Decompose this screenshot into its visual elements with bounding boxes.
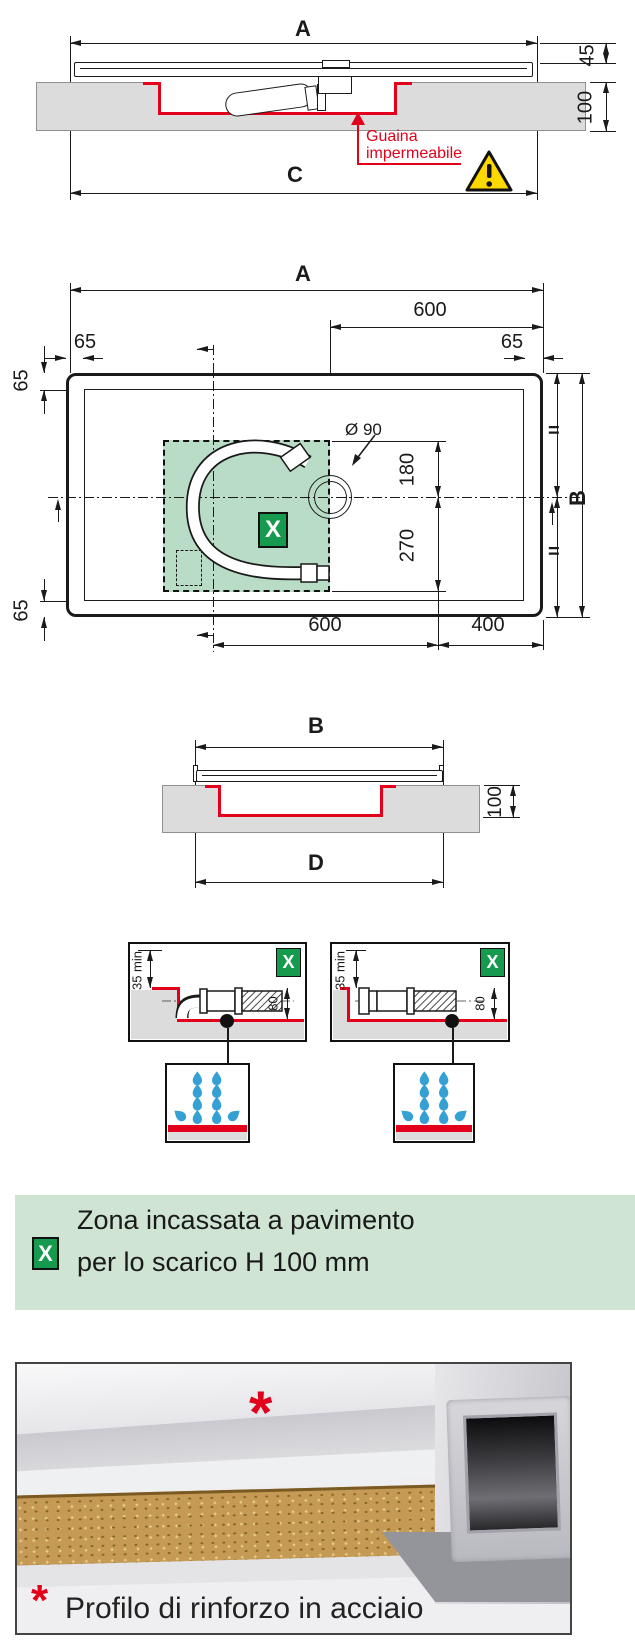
tray-surface-line [80, 68, 527, 69]
drain-cap [322, 60, 350, 68]
arrowhead [41, 390, 47, 401]
arrowhead [55, 355, 66, 361]
arrowhead [427, 642, 438, 648]
tray-surface-line [202, 775, 437, 776]
dim-label-b: B [296, 713, 336, 739]
callout-line [227, 1028, 229, 1063]
zone-marker-badge: X [276, 948, 301, 977]
shower-tray-profile [74, 62, 533, 77]
arrowhead [435, 441, 441, 452]
arrowhead [435, 497, 441, 508]
arrowhead [435, 486, 441, 497]
arrowhead [554, 486, 560, 497]
drain-hole-inner [314, 481, 347, 514]
extension-line [590, 131, 616, 132]
extension-line [70, 283, 71, 373]
arrowhead [197, 632, 208, 638]
dim-label-65-tl: 65 [65, 331, 105, 354]
arrowhead [435, 580, 441, 591]
warning-icon [464, 149, 514, 193]
dimension-line [330, 327, 543, 328]
asterisk-marker: * [31, 1576, 48, 1626]
equal-mark-bottom: = [548, 541, 560, 564]
dimension-line [438, 441, 439, 591]
dim-label-35min: 35 min [130, 946, 145, 996]
drain-pipe-straight [355, 985, 490, 1019]
photo-steel-profile [463, 1412, 561, 1533]
membrane-stub [383, 785, 396, 788]
water-drops-icon [170, 1066, 245, 1124]
equal-mark-top: = [548, 420, 560, 443]
membrane [177, 1019, 304, 1022]
reinforcement-photo: * * Profilo di rinforzo in acciaio [15, 1362, 572, 1635]
extension-line [332, 441, 446, 442]
arrowhead [330, 324, 341, 330]
extension-line [332, 591, 446, 592]
arrowhead [491, 1008, 497, 1019]
arrowhead [554, 606, 560, 617]
arrowhead [284, 1008, 290, 1019]
zone-marker-badge: X [480, 948, 505, 977]
water-drops-icon [397, 1066, 472, 1124]
dimension-line [213, 645, 543, 646]
dim-label-270: 270 [397, 523, 420, 569]
arrowhead [284, 988, 290, 999]
dimension-line [195, 747, 443, 748]
red-arrow-up [351, 112, 365, 125]
dim-label-65-lb: 65 [11, 591, 34, 631]
note-impermeabile: impermeabile [366, 145, 462, 163]
dim-label-600-top: 600 [400, 299, 460, 322]
callout-dot [220, 1014, 234, 1028]
arrowhead [432, 744, 443, 750]
asterisk-marker: * [249, 1378, 272, 1447]
dim-label-65-tr: 65 [492, 331, 532, 354]
dim-label-65-lt: 65 [11, 361, 34, 401]
dim-label-c: C [275, 162, 315, 188]
arrowhead [603, 53, 609, 64]
membrane [347, 1019, 507, 1022]
membrane [396, 1125, 472, 1132]
arrowhead [70, 190, 81, 196]
membrane-stub [205, 785, 218, 788]
dim-label-100: 100 [485, 782, 507, 822]
arrowhead [55, 499, 61, 510]
recess-waterproofed [218, 785, 383, 817]
arrowhead [526, 40, 537, 46]
shower-tray-profile [196, 770, 443, 782]
arrowhead [70, 287, 81, 293]
screed [333, 1022, 507, 1039]
legend-text-line2: per lo scarico H 100 mm [77, 1247, 370, 1278]
dimension-line [70, 193, 537, 194]
arrowhead [510, 806, 516, 817]
photo-caption: Profilo di rinforzo in acciaio [65, 1592, 424, 1626]
extension-line [543, 620, 544, 650]
membrane-stub [397, 82, 412, 85]
arrowhead [213, 642, 224, 648]
callout-line [452, 1028, 454, 1063]
screed [131, 1022, 304, 1039]
dim-label-80: 80 [473, 989, 488, 1019]
arrowhead [41, 362, 47, 373]
arrowhead [41, 590, 47, 601]
dim-label-b: B [565, 478, 591, 518]
dim-label-180: 180 [397, 447, 420, 493]
arrowhead [526, 190, 537, 196]
dim-label-a: A [283, 16, 323, 42]
dim-label-600-bottom: 600 [295, 614, 355, 637]
arrowhead [491, 988, 497, 999]
arrowhead [579, 606, 585, 617]
arrowhead [579, 373, 585, 384]
arrowhead [70, 40, 81, 46]
dim-label-45: 45 [577, 36, 600, 76]
arrowhead [353, 950, 359, 961]
dim-label-d: D [296, 850, 336, 876]
legend-text-line1: Zona incassata a pavimento [77, 1205, 415, 1236]
arrowhead [532, 642, 543, 648]
shower-tray-datasheet: A 45 100 C [0, 0, 635, 1650]
arrowhead [543, 355, 554, 361]
screed [396, 1132, 472, 1140]
extension-line [546, 617, 590, 618]
arrowhead [603, 82, 609, 93]
arrowhead [554, 497, 560, 508]
zone-marker-badge: X [32, 1237, 59, 1270]
dimension-line [70, 43, 537, 44]
screed [168, 1132, 247, 1140]
note-guaina: Guaina [366, 128, 418, 146]
callout-dot [445, 1014, 459, 1028]
arrowhead [147, 950, 153, 961]
arrowhead [195, 879, 206, 885]
dim-label-400: 400 [458, 614, 518, 637]
membrane [168, 1125, 247, 1132]
dim-label-a: A [283, 261, 323, 287]
zone-marker-badge: X [258, 512, 288, 548]
leader-line [357, 124, 359, 164]
leader-underline [357, 163, 461, 165]
arrowhead [438, 642, 449, 648]
dimension-line [195, 882, 443, 883]
membrane-stub [143, 82, 158, 85]
dim-label-35min: 35 min [333, 946, 348, 996]
arrowhead [195, 744, 206, 750]
drain-body [318, 74, 352, 94]
legend-banner: X Zona incassata a pavimento per lo scar… [15, 1195, 635, 1310]
dim-label-80: 80 [266, 989, 281, 1019]
arrowhead [432, 879, 443, 885]
arrowhead [532, 324, 543, 330]
arrowhead [532, 287, 543, 293]
arrowhead [603, 120, 609, 131]
leader-arrow [330, 428, 390, 478]
arrowhead [554, 373, 560, 384]
arrowhead [41, 617, 47, 628]
arrowhead [510, 785, 516, 796]
arrowhead [83, 355, 94, 361]
arrowhead [197, 346, 208, 352]
arrowhead [514, 355, 525, 361]
dim-label-100: 100 [575, 88, 598, 128]
dimension-line [70, 290, 543, 291]
